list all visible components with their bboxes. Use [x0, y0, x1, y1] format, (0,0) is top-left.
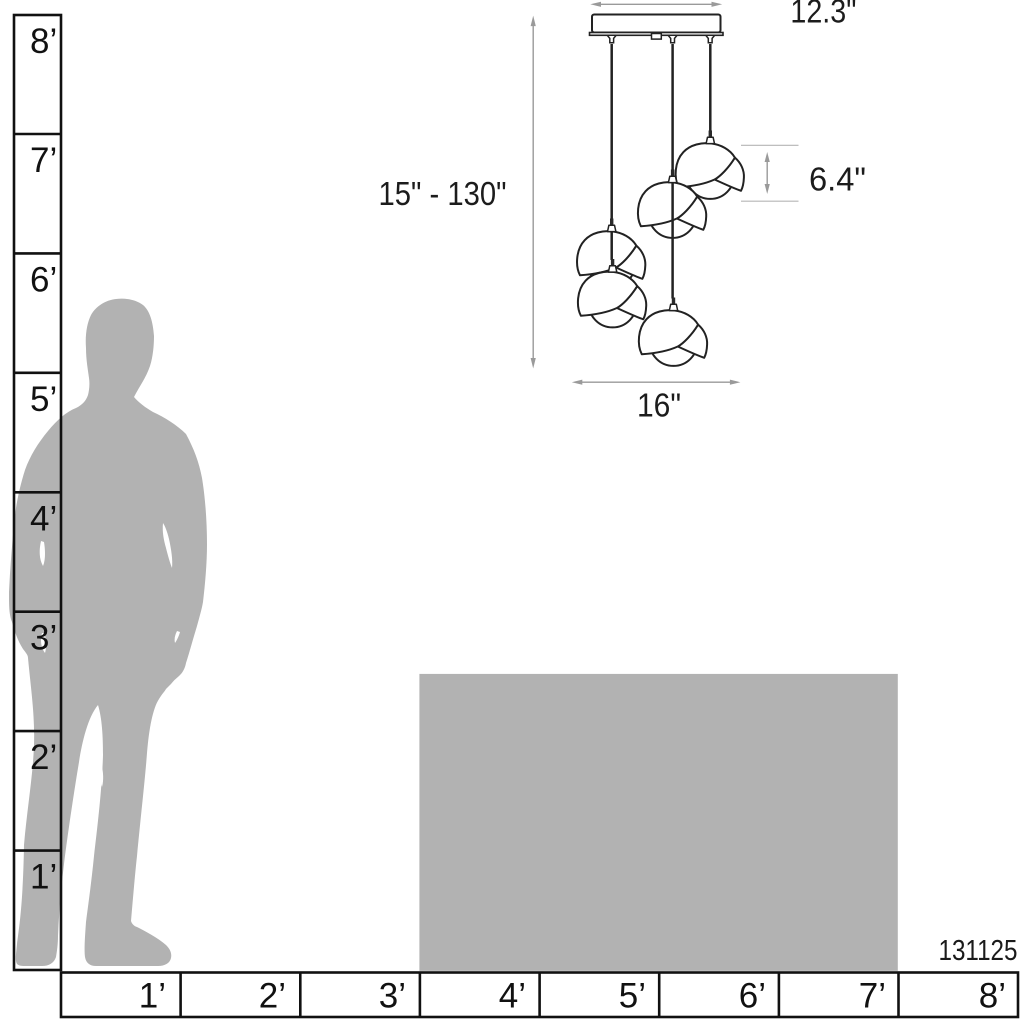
svg-text:6.4": 6.4"	[809, 161, 866, 198]
svg-text:5’: 5’	[619, 977, 646, 1016]
svg-text:3’: 3’	[30, 619, 57, 658]
svg-text:8’: 8’	[979, 977, 1006, 1016]
svg-text:4’: 4’	[30, 499, 57, 538]
svg-text:15" - 130": 15" - 130"	[379, 175, 507, 212]
svg-text:5’: 5’	[30, 380, 57, 419]
svg-text:7’: 7’	[859, 977, 886, 1016]
svg-text:3’: 3’	[379, 977, 406, 1016]
svg-text:7’: 7’	[30, 141, 57, 180]
svg-text:12.3": 12.3"	[790, 0, 856, 30]
svg-text:6’: 6’	[30, 260, 57, 299]
svg-text:2’: 2’	[30, 738, 57, 777]
svg-text:8’: 8’	[30, 22, 57, 61]
svg-text:131125: 131125	[939, 935, 1018, 967]
svg-text:1’: 1’	[30, 858, 57, 897]
svg-text:2’: 2’	[259, 977, 286, 1016]
svg-text:4’: 4’	[499, 977, 526, 1016]
svg-text:16": 16"	[637, 387, 681, 424]
svg-text:6’: 6’	[739, 977, 766, 1016]
svg-text:1’: 1’	[139, 977, 166, 1016]
